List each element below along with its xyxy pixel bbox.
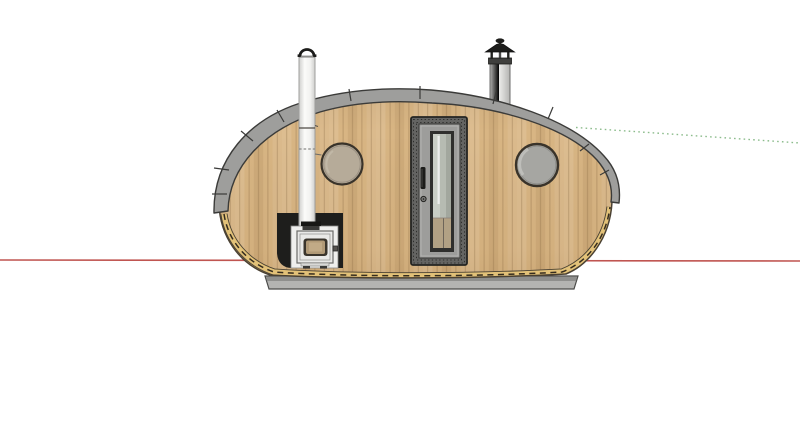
sketchup-3d-viewport[interactable] xyxy=(0,0,800,445)
entrance-door[interactable] xyxy=(411,117,467,265)
stove-flue-collar-lower xyxy=(303,226,320,230)
stove-foot-left xyxy=(303,266,310,269)
chimney-cap-post-right xyxy=(507,52,509,60)
flue-cap-foot-right xyxy=(313,54,316,57)
door-glass-white-streak xyxy=(438,136,440,204)
wood-stove[interactable] xyxy=(291,222,338,269)
stove-window-glow xyxy=(309,243,322,252)
porthole-window-right[interactable] xyxy=(516,144,558,186)
porthole-left-glass[interactable] xyxy=(322,144,363,185)
stove-flue-collar-upper xyxy=(301,222,321,227)
porthole-right-glass[interactable] xyxy=(516,144,558,186)
chimney-cap-post-left xyxy=(491,52,493,60)
door-glass-interior-reflection xyxy=(433,218,451,248)
flue-pipe-tube[interactable] xyxy=(299,56,315,232)
stove-door-knob[interactable] xyxy=(333,246,338,251)
chimney-cap-post-center xyxy=(499,52,501,60)
stove-pedestal xyxy=(301,263,329,266)
roof-chimney[interactable] xyxy=(486,38,515,108)
chimney-finial-knob xyxy=(496,38,505,43)
flue-cap-foot-left xyxy=(298,54,301,57)
model-scene[interactable] xyxy=(0,0,800,445)
stove-foot-right xyxy=(320,266,327,269)
porthole-window-left[interactable] xyxy=(322,144,363,185)
door-handle[interactable] xyxy=(421,167,426,189)
door-lock-keyhole xyxy=(423,198,425,200)
